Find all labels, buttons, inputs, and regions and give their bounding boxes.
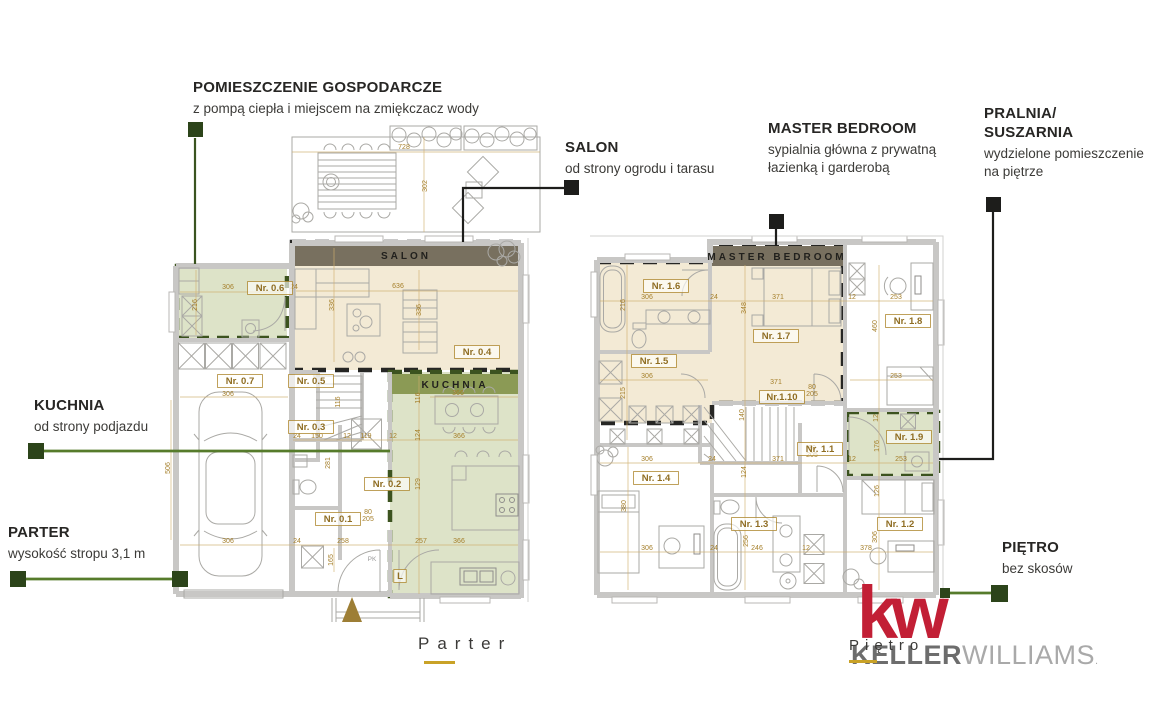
salon-band-label: SALON — [381, 251, 431, 262]
dimension-label: 366 — [452, 390, 464, 397]
room-number-label: Nr.1.10 — [766, 392, 797, 403]
ground-floor-underline — [424, 661, 455, 664]
callout-subtitle: wysokość stropu 3,1 m — [8, 545, 145, 563]
dimension-label: 336 — [416, 304, 423, 316]
upper-floor-label: Piętro — [849, 637, 924, 654]
room-number-label: Nr. 1.6 — [652, 281, 681, 292]
dimension-label: 24 — [293, 433, 301, 440]
dimension-label: 12 — [848, 456, 856, 463]
kw-logo-williams: WILLIAMS — [962, 640, 1095, 670]
dimension-label: 257 — [415, 538, 427, 545]
room-pralnia-highlight — [847, 412, 938, 476]
room-number-label: Nr. 0.4 — [463, 347, 492, 358]
parter-marker-right — [172, 571, 188, 587]
dimension-label: 126 — [874, 485, 881, 497]
dimension-label: 24 — [293, 538, 301, 545]
dimension-label: 119 — [360, 433, 371, 440]
dimension-label: 366 — [453, 538, 465, 545]
callout-subtitle: od strony ogrodu i tarasu — [565, 160, 714, 178]
dimension-label: 253 — [890, 294, 902, 301]
parter-marker-left — [10, 571, 26, 587]
dimension-label: 306 — [641, 456, 653, 463]
dimension-label: 460 — [872, 320, 879, 332]
dimension-label: 12 — [389, 433, 397, 440]
room-number-label: L — [397, 571, 403, 582]
kw-logo-mark: kw — [857, 584, 1098, 642]
kuchnia-band-label: KUCHNIA — [421, 380, 488, 391]
callout-kuchnia: KUCHNIA od strony podjazdu — [34, 397, 148, 436]
dimension-label: 306 — [222, 538, 234, 545]
dimension-label: 306 — [641, 373, 653, 380]
keller-williams-logo: kw KELLERWILLIAMS. — [851, 584, 1098, 669]
room-number-label: Nr. 0.3 — [297, 422, 326, 433]
callout-subtitle: łazienką i garderobą — [768, 159, 936, 177]
room-number-label: Nr. 1.7 — [762, 331, 791, 342]
floor-plan-brochure: 7283023062421663633633611630650630624258… — [0, 0, 1170, 727]
callout-subtitle: od strony podjazdu — [34, 418, 148, 436]
dimension-label: 380 — [621, 500, 628, 512]
callout-title: PIĘTRO — [1002, 539, 1073, 558]
dimension-label: 205 — [362, 516, 374, 523]
dimension-label: 306 — [641, 294, 653, 301]
callout-title: MASTER BEDROOM — [768, 120, 936, 139]
dimension-label: 12 — [343, 433, 351, 440]
dimension-label: 378 — [860, 545, 872, 552]
dimension-label: 371 — [772, 456, 784, 463]
dimension-label: 12 — [802, 545, 810, 552]
callout-title: PARTER — [8, 524, 145, 543]
callout-pomieszczenie-gospodarcze: POMIESZCZENIE GOSPODARCZE z pompą ciepła… — [193, 79, 479, 118]
dimension-label: 24 — [710, 545, 718, 552]
callout-subtitle: na piętrze — [984, 163, 1144, 181]
room-number-label: Nr. 0.2 — [373, 479, 402, 490]
dimension-label: 165 — [328, 554, 335, 566]
dimension-label: 116 — [415, 392, 422, 403]
dimension-label: 140 — [739, 409, 746, 421]
dimension-label: 124 — [415, 429, 422, 441]
room-number-label: Nr. 0.5 — [297, 376, 326, 387]
pralnia-connector — [939, 212, 993, 459]
callout-title: SALON — [565, 139, 714, 158]
dimension-label: 24 — [708, 456, 716, 463]
dimension-label: 12 — [873, 414, 880, 422]
upper-floor-plan: 3062162437134812253460306215253802053711… — [590, 236, 944, 603]
callout-subtitle: sypialnia główna z prywatną — [768, 141, 936, 159]
dimension-label: 80 — [364, 509, 372, 516]
dimension-label: 506 — [165, 462, 172, 474]
dimension-label: 176 — [874, 440, 881, 452]
dimension-label: 205 — [806, 391, 818, 398]
dimension-label: 24 — [710, 294, 718, 301]
dimension-label: 371 — [770, 379, 782, 386]
room-number-label: Nr. 1.2 — [886, 519, 915, 530]
salon-marker — [564, 180, 579, 195]
dimension-label: 636 — [392, 283, 404, 290]
pralnia-marker — [986, 197, 1001, 212]
dimension-label: 216 — [192, 299, 199, 311]
room-number-label: Nr. 1.4 — [642, 473, 671, 484]
ground-floor-plan: 7283023062421663633633611630650630624258… — [165, 126, 540, 622]
callout-master-bedroom: MASTER BEDROOM sypialnia główna z prywat… — [768, 120, 936, 177]
master-marker — [769, 214, 784, 229]
note-label: PK — [368, 556, 377, 563]
callout-pietro: PIĘTRO bez skosów — [1002, 539, 1073, 578]
gospodarcze-marker — [188, 122, 203, 137]
dimension-label: 129 — [415, 478, 422, 490]
dimension-label: 216 — [620, 299, 627, 311]
dimension-label: 256 — [743, 535, 750, 547]
room-number-label: Nr. 0.1 — [324, 514, 353, 525]
dimension-label: 215 — [620, 387, 627, 399]
terrace — [292, 126, 540, 232]
callout-parter: PARTER wysokość stropu 3,1 m — [8, 524, 145, 563]
dimension-label: 306 — [222, 391, 234, 398]
dimension-label: 80 — [808, 384, 816, 391]
room-number-label: Nr. 1.9 — [895, 432, 924, 443]
dimension-label: 116 — [335, 396, 342, 407]
dimension-label: 336 — [329, 299, 336, 311]
dimension-label: 253 — [890, 373, 902, 380]
room-number-label: Nr. 0.7 — [226, 376, 255, 387]
dimension-label: 246 — [751, 545, 763, 552]
dimension-label: 253 — [895, 456, 907, 463]
callout-subtitle: wydzielone pomieszczenie — [984, 145, 1144, 163]
dimension-label: 366 — [453, 433, 465, 440]
callout-title: SUSZARNIA — [984, 124, 1144, 143]
dimension-label: 302 — [422, 180, 429, 192]
callout-title: KUCHNIA — [34, 397, 148, 416]
dimension-label: 306 — [641, 545, 653, 552]
dimension-label: 124 — [741, 466, 748, 478]
dimension-label: 306 — [222, 284, 234, 291]
callout-pralnia: PRALNIA/ SUSZARNIA wydzielone pomieszcze… — [984, 105, 1144, 181]
callout-subtitle: z pompą ciepła i miejscem na zmiękczacz … — [193, 100, 479, 118]
room-number-label: Nr. 1.1 — [806, 444, 835, 455]
room-number-label: Nr. 1.3 — [740, 519, 769, 530]
kuchnia-marker — [28, 443, 44, 459]
callout-title: POMIESZCZENIE GOSPODARCZE — [193, 79, 479, 98]
callout-salon: SALON od strony ogrodu i tarasu — [565, 139, 714, 178]
dimension-label: 371 — [772, 294, 784, 301]
plant — [292, 203, 313, 223]
upper-floor-underline — [849, 660, 877, 663]
dimension-label: 150 — [311, 433, 323, 440]
dimension-label: 728 — [398, 144, 410, 151]
dimension-label: 348 — [741, 302, 748, 314]
room-number-label: Nr. 1.8 — [894, 316, 923, 327]
north-arrow-icon — [342, 597, 362, 622]
callout-title: PRALNIA/ — [984, 105, 1144, 124]
dimension-label: 258 — [337, 538, 349, 545]
kw-logo-reg: . — [1095, 655, 1098, 667]
callout-subtitle: bez skosów — [1002, 560, 1073, 578]
dimension-label: 306 — [872, 531, 879, 543]
room-number-label: Nr. 1.5 — [640, 356, 669, 367]
dimension-label: 281 — [325, 457, 332, 469]
car — [194, 392, 267, 576]
ground-floor-label: Parter — [418, 634, 512, 654]
master-band-label: MASTER BEDROOM — [707, 252, 846, 263]
salon-connector — [463, 188, 566, 242]
dimension-label: 12 — [848, 294, 856, 301]
room-number-label: Nr. 0.6 — [256, 283, 285, 294]
